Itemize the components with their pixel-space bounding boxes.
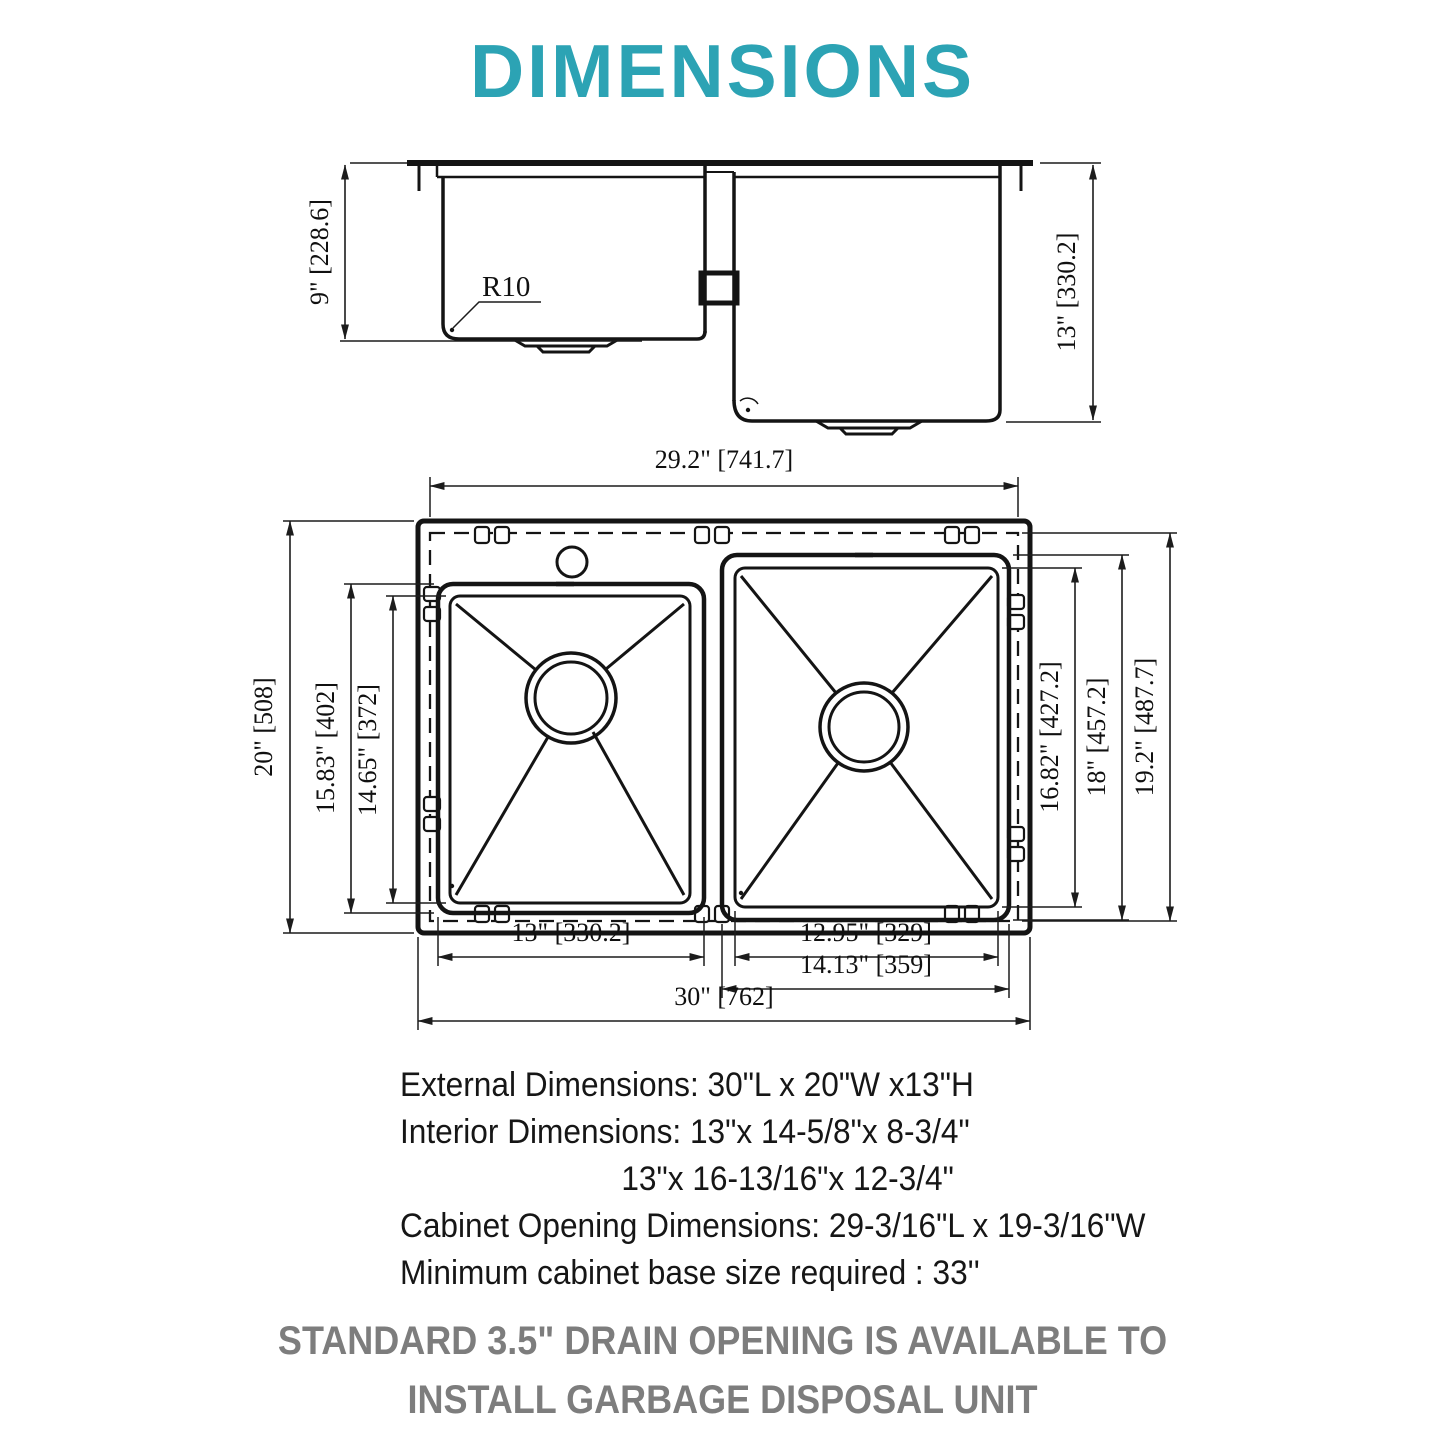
cabinet-opening-line: Cabinet Opening Dimensions: 29-3/16"L x … (400, 1203, 1145, 1250)
dim-left-bowl-width: 13" [330.2] (438, 917, 704, 966)
dim-left-bowl-depth: 9" [228.6] (305, 163, 642, 341)
left-bowl-inner-length-label: 14.65" [372] (353, 684, 382, 816)
spec-text-block: External Dimensions: 30"L x 20"W x13"H I… (400, 1062, 1145, 1297)
drain-opening-note: STANDARD 3.5" DRAIN OPENING IS AVAILABLE… (72, 1312, 1373, 1430)
right-bowl-inner-length-label: 16.82" [427.2] (1035, 661, 1064, 812)
dim-corner-radius: R10 (453, 271, 541, 328)
cabinet-base-line: Minimum cabinet base size required : 33'… (400, 1250, 1145, 1297)
side-view-drawing: R10 9" [228.6] 13" [330.2] (305, 163, 1101, 434)
right-bowl-outer-width-label: 14.13" [359] (800, 950, 932, 979)
corner-radius-label: R10 (482, 271, 530, 303)
cutout-length-label: 29.2" [741.7] (655, 445, 793, 474)
interior-dimensions-line2: 13"x 16-13/16"x 12-3/4" (400, 1156, 1145, 1203)
external-dimensions-line: External Dimensions: 30"L x 20"W x13"H (400, 1062, 1145, 1109)
right-drain-profile (816, 421, 922, 434)
faucet-hole (557, 547, 587, 577)
left-bowl-depth-label: 9" [228.6] (305, 199, 334, 305)
dimensions-sheet: DIMENSIONS (0, 0, 1445, 1445)
cutout-width-label: 19.2" [487.7] (1130, 658, 1159, 796)
bowl-divider (701, 163, 737, 401)
dim-cutout-length: 29.2" [741.7] (430, 445, 1018, 517)
left-bowl-width-label: 13" [330.2] (512, 918, 631, 947)
overall-width-label: 20" [508] (249, 677, 278, 776)
left-bowl-plan (438, 584, 704, 913)
left-drain-hole (526, 653, 616, 743)
right-bowl-plan (722, 555, 1009, 920)
radius-center-dot (746, 408, 750, 412)
right-bowl-depth-label: 13" [330.2] (1052, 233, 1081, 352)
note-line-1: STANDARD 3.5" DRAIN OPENING IS AVAILABLE… (72, 1312, 1373, 1371)
right-bowl-inner-width-label: 12.95" [329] (800, 918, 932, 947)
top-view-drawing: 29.2" [741.7] 20" [508] 15.83" [402] (249, 445, 1177, 1030)
left-bowl-profile (437, 166, 705, 352)
interior-dimensions-line: Interior Dimensions: 13"x 14-5/8"x 8-3/4… (400, 1109, 1145, 1156)
right-drain-hole (820, 683, 908, 771)
right-bowl-profile (734, 166, 1000, 434)
note-line-2: INSTALL GARBAGE DISPOSAL UNIT (72, 1371, 1373, 1430)
right-bowl-outer-length-label: 18" [457.2] (1082, 678, 1111, 797)
left-bowl-outer-length-label: 15.83" [402] (311, 682, 340, 814)
dim-overall-length: 30" [762] (418, 937, 1030, 1030)
overall-length-label: 30" [762] (674, 982, 773, 1011)
dim-left-bowl-inner-length: 14.65" [372] (353, 596, 446, 903)
dim-right-bowl-depth: 13" [330.2] (1006, 163, 1101, 422)
